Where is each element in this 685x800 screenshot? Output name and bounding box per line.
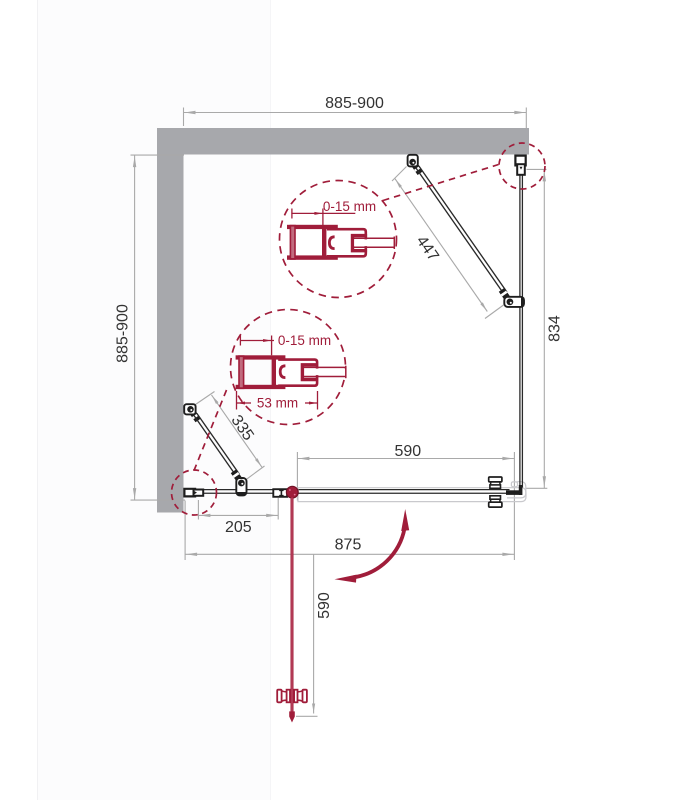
- svg-text:53 mm: 53 mm: [257, 396, 298, 411]
- svg-text:885-900: 885-900: [325, 95, 384, 112]
- svg-text:590: 590: [394, 443, 421, 460]
- svg-text:885-900: 885-900: [115, 304, 132, 363]
- svg-text:875: 875: [335, 537, 362, 554]
- svg-text:834: 834: [546, 315, 563, 342]
- svg-text:0-15 mm: 0-15 mm: [278, 333, 331, 348]
- svg-text:0-15 mm: 0-15 mm: [323, 199, 376, 214]
- svg-text:205: 205: [225, 519, 252, 536]
- svg-text:447: 447: [413, 233, 442, 265]
- svg-text:590: 590: [316, 592, 333, 619]
